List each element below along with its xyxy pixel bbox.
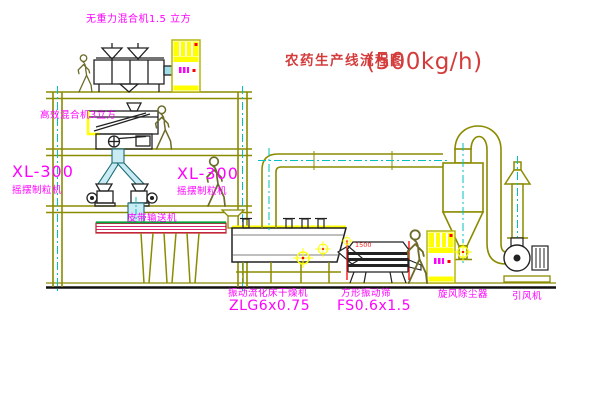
label-granulator-left-name: 摇摆制粒机 — [12, 184, 62, 196]
label-high-mixer: 高效混合机3立方 — [40, 109, 117, 121]
granulator-left — [87, 184, 115, 206]
y-chute — [98, 149, 144, 184]
duct-dryer-to-cyclone — [262, 151, 443, 228]
drawing-canvas: 农药生产线流程图 (500kg/h) 无重力混合机1.5 立方 高效混合机3立方… — [0, 0, 600, 403]
belt-conveyor — [96, 222, 226, 283]
control-cabinet-top — [172, 40, 200, 92]
label-gravity-mixer: 无重力混合机1.5 立方 — [86, 12, 191, 25]
fluid-bed-dryer — [232, 219, 362, 284]
gravity-mixer-machine — [94, 43, 173, 92]
induced-draft-fan — [504, 238, 550, 282]
label-fan: 引风机 — [512, 290, 542, 302]
ground-line — [46, 283, 556, 288]
label-conveyor: 皮带输送机 — [127, 212, 177, 224]
centerline-target-icon — [454, 243, 472, 261]
process-flow-drawing: 农药生产线流程图 (500kg/h) 无重力混合机1.5 立方 高效混合机3立方… — [0, 0, 600, 403]
label-screen-dimension: 1500 — [355, 241, 372, 249]
drawing-title-capacity: (500kg/h) — [366, 49, 483, 75]
label-screen-model: FS0.6x1.5 — [337, 298, 411, 314]
label-dryer-model: ZLG6x0.75 — [229, 298, 310, 314]
worker-figure — [408, 230, 427, 283]
label-cyclone: 旋风除尘器 — [438, 288, 488, 300]
label-granulator-right-model: XL-300 — [177, 164, 239, 183]
control-cabinet-ground — [427, 231, 455, 283]
label-granulator-right-name: 摇摆制粒机 — [177, 185, 227, 197]
label-granulator-left-model: XL-300 — [12, 162, 74, 181]
worker-figure — [78, 55, 92, 92]
